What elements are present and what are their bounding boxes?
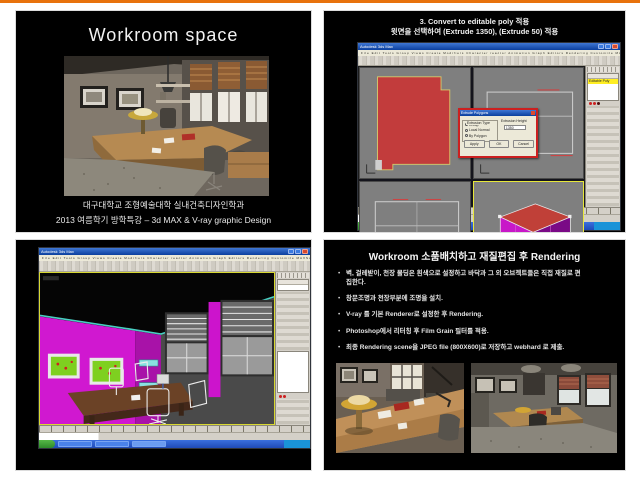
apply-button[interactable]: Apply [464,140,485,148]
render-wide-image [471,363,617,453]
main-toolbar[interactable] [39,261,310,272]
taskbar-item[interactable] [95,441,129,447]
workroom-interior-photo [64,56,269,196]
taskbar-item[interactable] [58,441,92,447]
camera-viewport[interactable] [39,272,275,425]
bullet-icon: • [338,295,346,304]
slide-workroom-space: Workroom space [16,11,311,232]
slide-title: Workroom 소품배치하고 재질편집 후 Rendering [324,248,625,263]
radio-by-polygon[interactable]: By Polygon [465,134,497,138]
rollout-buttons[interactable] [277,292,309,350]
viewport-top[interactable] [359,67,471,179]
bullet-icon: • [338,344,346,353]
extrusion-height-input[interactable]: 1350 [504,125,526,130]
slide-title: Workroom space [16,25,311,46]
radio-label-local-normal: Local Normal [469,128,490,132]
viewport-area[interactable]: Extrude Polygons Extrusion Type Group [358,66,585,207]
caption-course: 2013 여름학기 방학특강 – 3d MAX & V-ray graphic … [16,214,311,226]
handout-page: { "frame": { "accent_color": "#e8720c", … [0,0,640,480]
bullet-text: 창문조명과 천장부분에 조명을 설치. [346,295,586,304]
command-panel[interactable] [275,272,310,425]
bullet-text: 벽, 걸레받이, 천장 몰딩은 흰색으로 설정하고 바닥과 그 외 오브젝트들은… [346,270,586,288]
rollout-listbox[interactable] [277,351,309,393]
window-titlebar[interactable]: Autodesk 3ds Max [39,248,310,255]
maximize-button[interactable] [295,249,301,254]
dialog-close-icon[interactable] [531,111,535,115]
slide-title-line2: 윗면을 선택하여 (Extrude 1350), (Extrude 50) 적용 [324,26,625,37]
bullet-text: V-ray 를 기본 Renderer로 설정한 후 Rendering. [346,311,586,320]
slide-model-view: Autodesk 3ds Max File Edit Tools Group V… [16,240,311,470]
bullet-list: • 벽, 걸레받이, 천장 몰딩은 흰색으로 설정하고 바닥과 그 외 오브젝트… [338,270,590,360]
cancel-button[interactable]: Cancel [513,140,534,148]
start-button[interactable] [39,440,55,448]
caption-department: 대구대학교 조형예술대학 실내건축디자인학과 [16,199,311,211]
status-bar [39,432,310,440]
list-item: • 최종 Rendering scene을 JPEG file (800X600… [338,344,590,353]
extrude-polygons-dialog[interactable]: Extrude Polygons Extrusion Type Group [458,108,538,158]
window-titlebar[interactable]: Autodesk 3ds Max [358,43,620,50]
rollout-buttons[interactable] [277,399,309,424]
radio-icon[interactable] [465,134,468,137]
rollout-buttons[interactable] [587,106,619,206]
max-window-screenshot: Autodesk 3ds Max File Edit Tools Group V… [357,42,621,231]
list-item: • 벽, 걸레받이, 천장 몰딩은 흰색으로 설정하고 바닥과 그 외 오브젝트… [338,270,590,288]
ok-button[interactable]: OK [489,140,510,148]
command-panel[interactable]: Editable Poly [585,66,620,207]
list-item: • V-ray 를 기본 Renderer로 설정한 후 Rendering. [338,311,590,320]
accent-top-line [0,0,640,3]
viewport-label [43,276,59,280]
system-tray [594,222,620,230]
bullet-icon: • [338,328,346,337]
extrusion-type-label: Extrusion Type [466,121,491,125]
radio-local-normal[interactable]: Local Normal [465,128,497,132]
render-closeup-image [336,363,464,453]
max-window-screenshot: Autodesk 3ds Max File Edit Tools Group V… [38,247,311,449]
command-panel-tabs[interactable] [277,273,309,278]
bullet-icon: • [338,311,346,320]
slide-rendering: Workroom 소품배치하고 재질편집 후 Rendering • 벽, 걸레… [324,240,625,470]
system-tray [284,440,310,448]
radio-label-by-polygon: By Polygon [469,134,487,138]
list-item: • 창문조명과 천장부분에 조명을 설치. [338,295,590,304]
maximize-button[interactable] [605,44,611,49]
bullet-icon: • [338,270,346,288]
timeline-slider[interactable] [39,425,310,432]
window-title: Autodesk 3ds Max [360,44,597,49]
radio-icon[interactable] [465,129,468,132]
bullet-text: Photoshop에서 리터칭 후 Film Grain 필터를 적용. [346,328,586,337]
window-title: Autodesk 3ds Max [41,249,287,254]
minimize-button[interactable] [288,249,294,254]
close-button[interactable] [302,249,308,254]
extrusion-height-label: Extrusion Height [501,119,533,123]
main-toolbar[interactable] [358,56,620,66]
close-button[interactable] [612,44,618,49]
bullet-text: 최종 Rendering scene을 JPEG file (800X600)로… [346,344,586,353]
windows-taskbar[interactable] [39,440,310,448]
viewport-perspective[interactable] [473,181,585,233]
command-panel-tabs[interactable] [587,67,619,72]
dialog-title: Extrude Polygons [461,111,531,115]
list-item: • Photoshop에서 리터칭 후 Film Grain 필터를 적용. [338,328,590,337]
modifier-stack-selected[interactable]: Editable Poly [588,79,618,84]
slide-editable-poly: 3. Convert to editable poly 적용 윗면을 선택하여 … [324,11,625,232]
modifier-stack[interactable] [277,279,309,291]
minimize-button[interactable] [598,44,604,49]
viewport-left[interactable] [359,181,471,233]
extrusion-type-group: Extrusion Type Group Local Normal [462,120,498,142]
taskbar-item-active[interactable] [132,441,166,447]
interior-render-illustration [64,56,269,196]
modifier-stack[interactable]: Editable Poly [587,73,619,101]
